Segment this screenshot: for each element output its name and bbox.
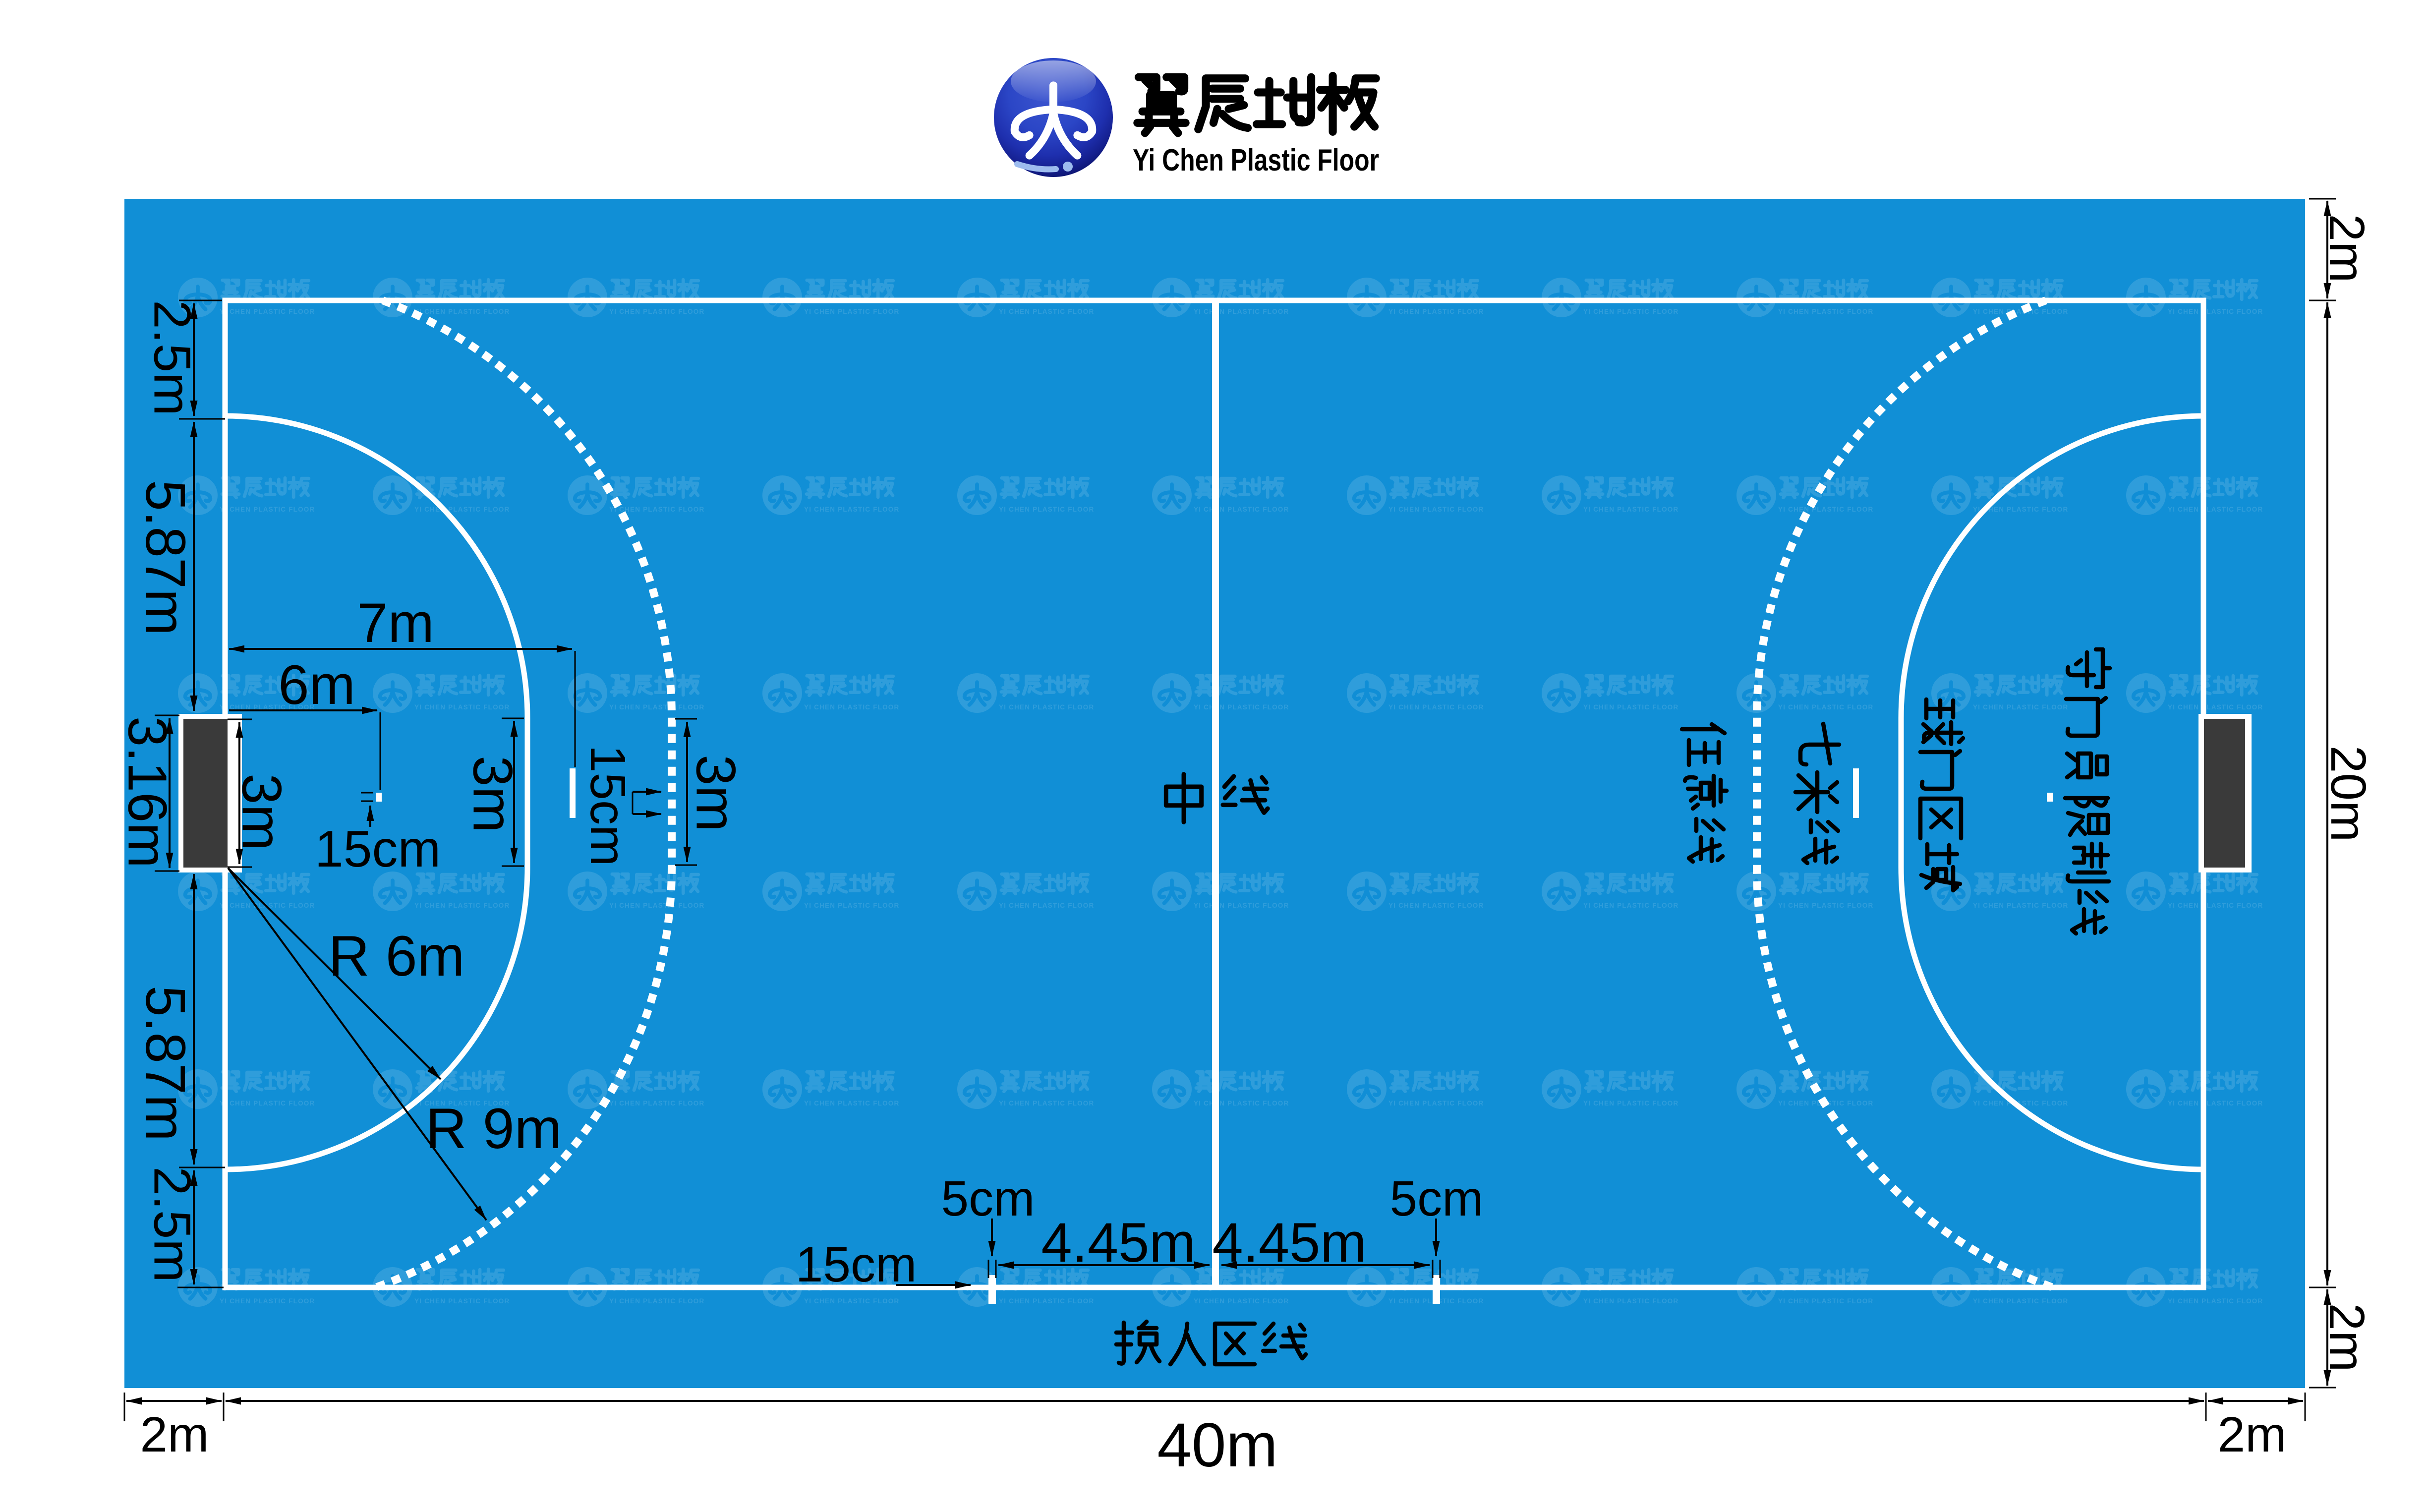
svg-text:5.87m: 5.87m [134, 480, 197, 636]
svg-text:5cm: 5cm [941, 1171, 1035, 1226]
svg-text:4.45m: 4.45m [1212, 1212, 1366, 1274]
svg-text:2m: 2m [140, 1407, 209, 1462]
svg-text:2m: 2m [2319, 1303, 2374, 1372]
svg-text:3.16m: 3.16m [117, 716, 178, 868]
svg-text:6m: 6m [278, 654, 355, 716]
svg-text:2.5m: 2.5m [143, 1166, 201, 1282]
svg-text:R 6m: R 6m [329, 925, 465, 988]
svg-text:2m: 2m [2319, 214, 2374, 283]
svg-text:5cm: 5cm [1390, 1171, 1484, 1226]
svg-text:15cm: 15cm [580, 745, 636, 867]
svg-text:3m: 3m [231, 773, 293, 851]
svg-text:3m: 3m [462, 756, 524, 833]
svg-text:R 9m: R 9m [426, 1097, 562, 1161]
svg-text:4.45m: 4.45m [1041, 1212, 1195, 1274]
svg-text:15cm: 15cm [315, 820, 441, 878]
svg-text:2m: 2m [2218, 1407, 2287, 1462]
svg-text:20m: 20m [2320, 746, 2376, 842]
svg-text:2.5m: 2.5m [143, 300, 201, 415]
svg-text:15cm: 15cm [796, 1237, 917, 1292]
svg-text:7m: 7m [357, 592, 434, 654]
svg-text:3m: 3m [685, 755, 747, 832]
svg-text:40m: 40m [1157, 1411, 1277, 1480]
svg-text:Yi Chen Plastic Floor: Yi Chen Plastic Floor [1133, 143, 1379, 177]
svg-text:5.87m: 5.87m [134, 986, 197, 1141]
